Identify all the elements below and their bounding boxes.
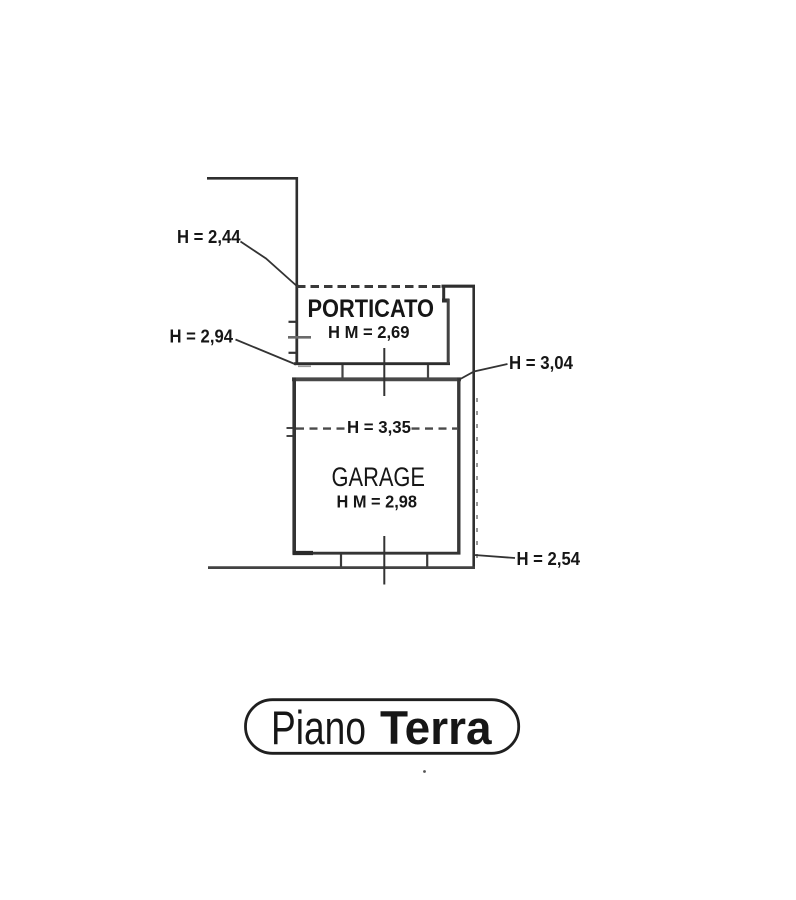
svg-text:H = 2,94: H = 2,94 [170, 327, 234, 347]
svg-text:H M = 2,69: H M = 2,69 [328, 322, 410, 342]
svg-text:H = 3,04: H = 3,04 [509, 353, 573, 373]
svg-text:PORTICATO: PORTICATO [308, 295, 435, 323]
svg-text:H M = 2,98: H M = 2,98 [337, 491, 418, 511]
svg-text:H = 2,54: H = 2,54 [517, 549, 581, 569]
svg-text:H = 2,44: H = 2,44 [177, 227, 241, 247]
svg-text:Piano: Piano [271, 701, 366, 754]
svg-text:Terra: Terra [380, 701, 492, 754]
svg-text:GARAGE: GARAGE [332, 462, 426, 492]
svg-text:H = 3,35: H = 3,35 [347, 417, 411, 437]
